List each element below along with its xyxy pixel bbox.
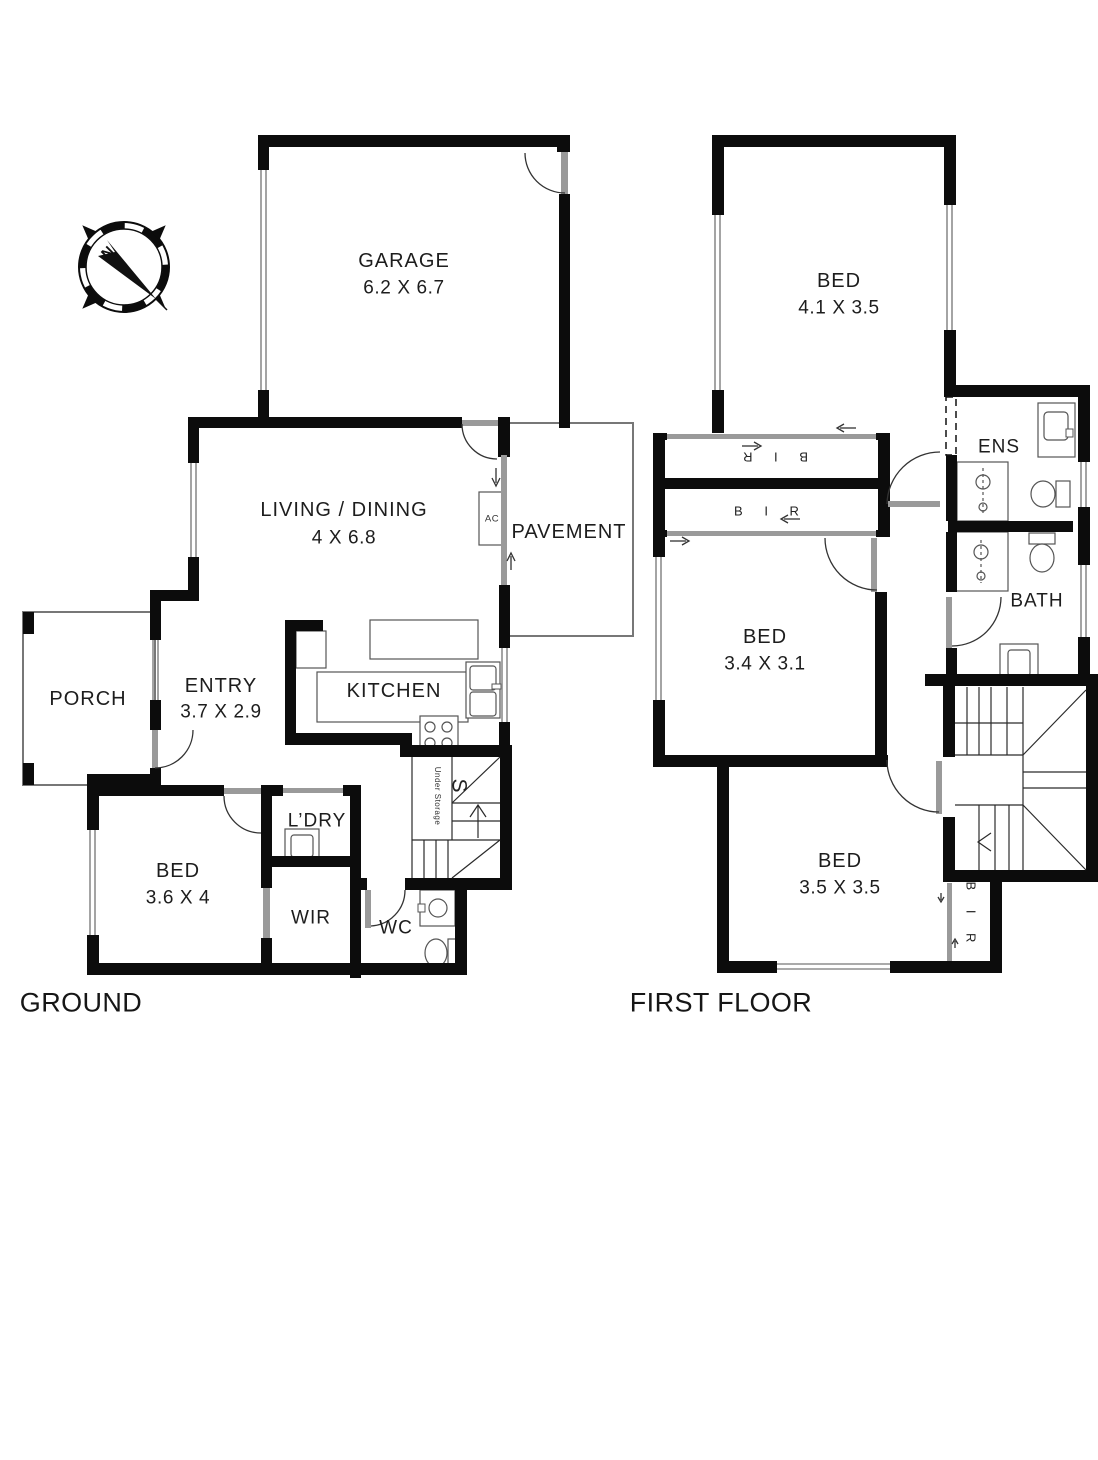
ens-label: ENS (978, 438, 1020, 457)
entry-label: ENTRY (185, 676, 257, 696)
bir-bottom-label: B I R (734, 505, 808, 518)
bir-side-label: B I R (965, 882, 978, 951)
pavement-label: PAVEMENT (511, 522, 626, 542)
laundry-label: L’DRY (288, 812, 347, 831)
walls-layer (23, 135, 1098, 978)
kitchen-label: KITCHEN (347, 681, 442, 701)
wir-label: WIR (291, 909, 331, 928)
garage-dims: 6.2 X 6.7 (363, 279, 444, 298)
floor-plan-graphics: N (0, 0, 1098, 1460)
compass-icon: N (79, 222, 169, 312)
wc-toilet-icon (425, 939, 459, 967)
bed-ground-label: BED (156, 861, 200, 881)
under-storage-label: Under Storage (433, 767, 441, 826)
ens-sink-icon (1038, 403, 1075, 457)
ens-shower-icon (957, 462, 1008, 521)
dashed-wall (946, 397, 956, 455)
first-floor-caption: FIRST FLOOR (630, 990, 812, 1017)
ac-label: AC (485, 514, 499, 524)
fridge-icon (296, 631, 326, 668)
wc-sink-icon (418, 890, 455, 926)
wc-label: WC (379, 919, 413, 938)
bed3-dims: 3.5 X 3.5 (799, 879, 880, 898)
windows-layer (90, 170, 1086, 969)
bed1-label: BED (817, 271, 861, 291)
bath-toilet-icon (1029, 533, 1055, 572)
bir-top-label: B I R (734, 451, 808, 464)
porch-label: PORCH (49, 689, 126, 709)
bath-label: BATH (1010, 592, 1063, 611)
kitchen-island (370, 620, 478, 659)
bed2-label: BED (743, 627, 787, 647)
living-dining-label: LIVING / DINING (260, 500, 427, 520)
outdoor-outlines (23, 423, 633, 785)
bath-shower-icon (955, 532, 1008, 591)
garage-label: GARAGE (358, 251, 450, 271)
floor-plan: N GARAGE 6.2 X 6.7 LIVING / DINING 4 X 6… (0, 0, 1098, 1460)
kitchen-sink-icon (466, 662, 501, 718)
bed1-dims: 4.1 X 3.5 (798, 299, 879, 318)
bed2-dims: 3.4 X 3.1 (724, 655, 805, 674)
stair-letter: S (449, 778, 470, 793)
bed-ground-dims: 3.6 X 4 (146, 889, 210, 908)
bed3-label: BED (818, 851, 862, 871)
living-dining-dims: 4 X 6.8 (312, 529, 376, 548)
ens-toilet-icon (1031, 481, 1070, 507)
stairs-layer (412, 687, 1086, 878)
entry-dims: 3.7 X 2.9 (180, 703, 261, 722)
ground-caption: GROUND (20, 990, 142, 1017)
